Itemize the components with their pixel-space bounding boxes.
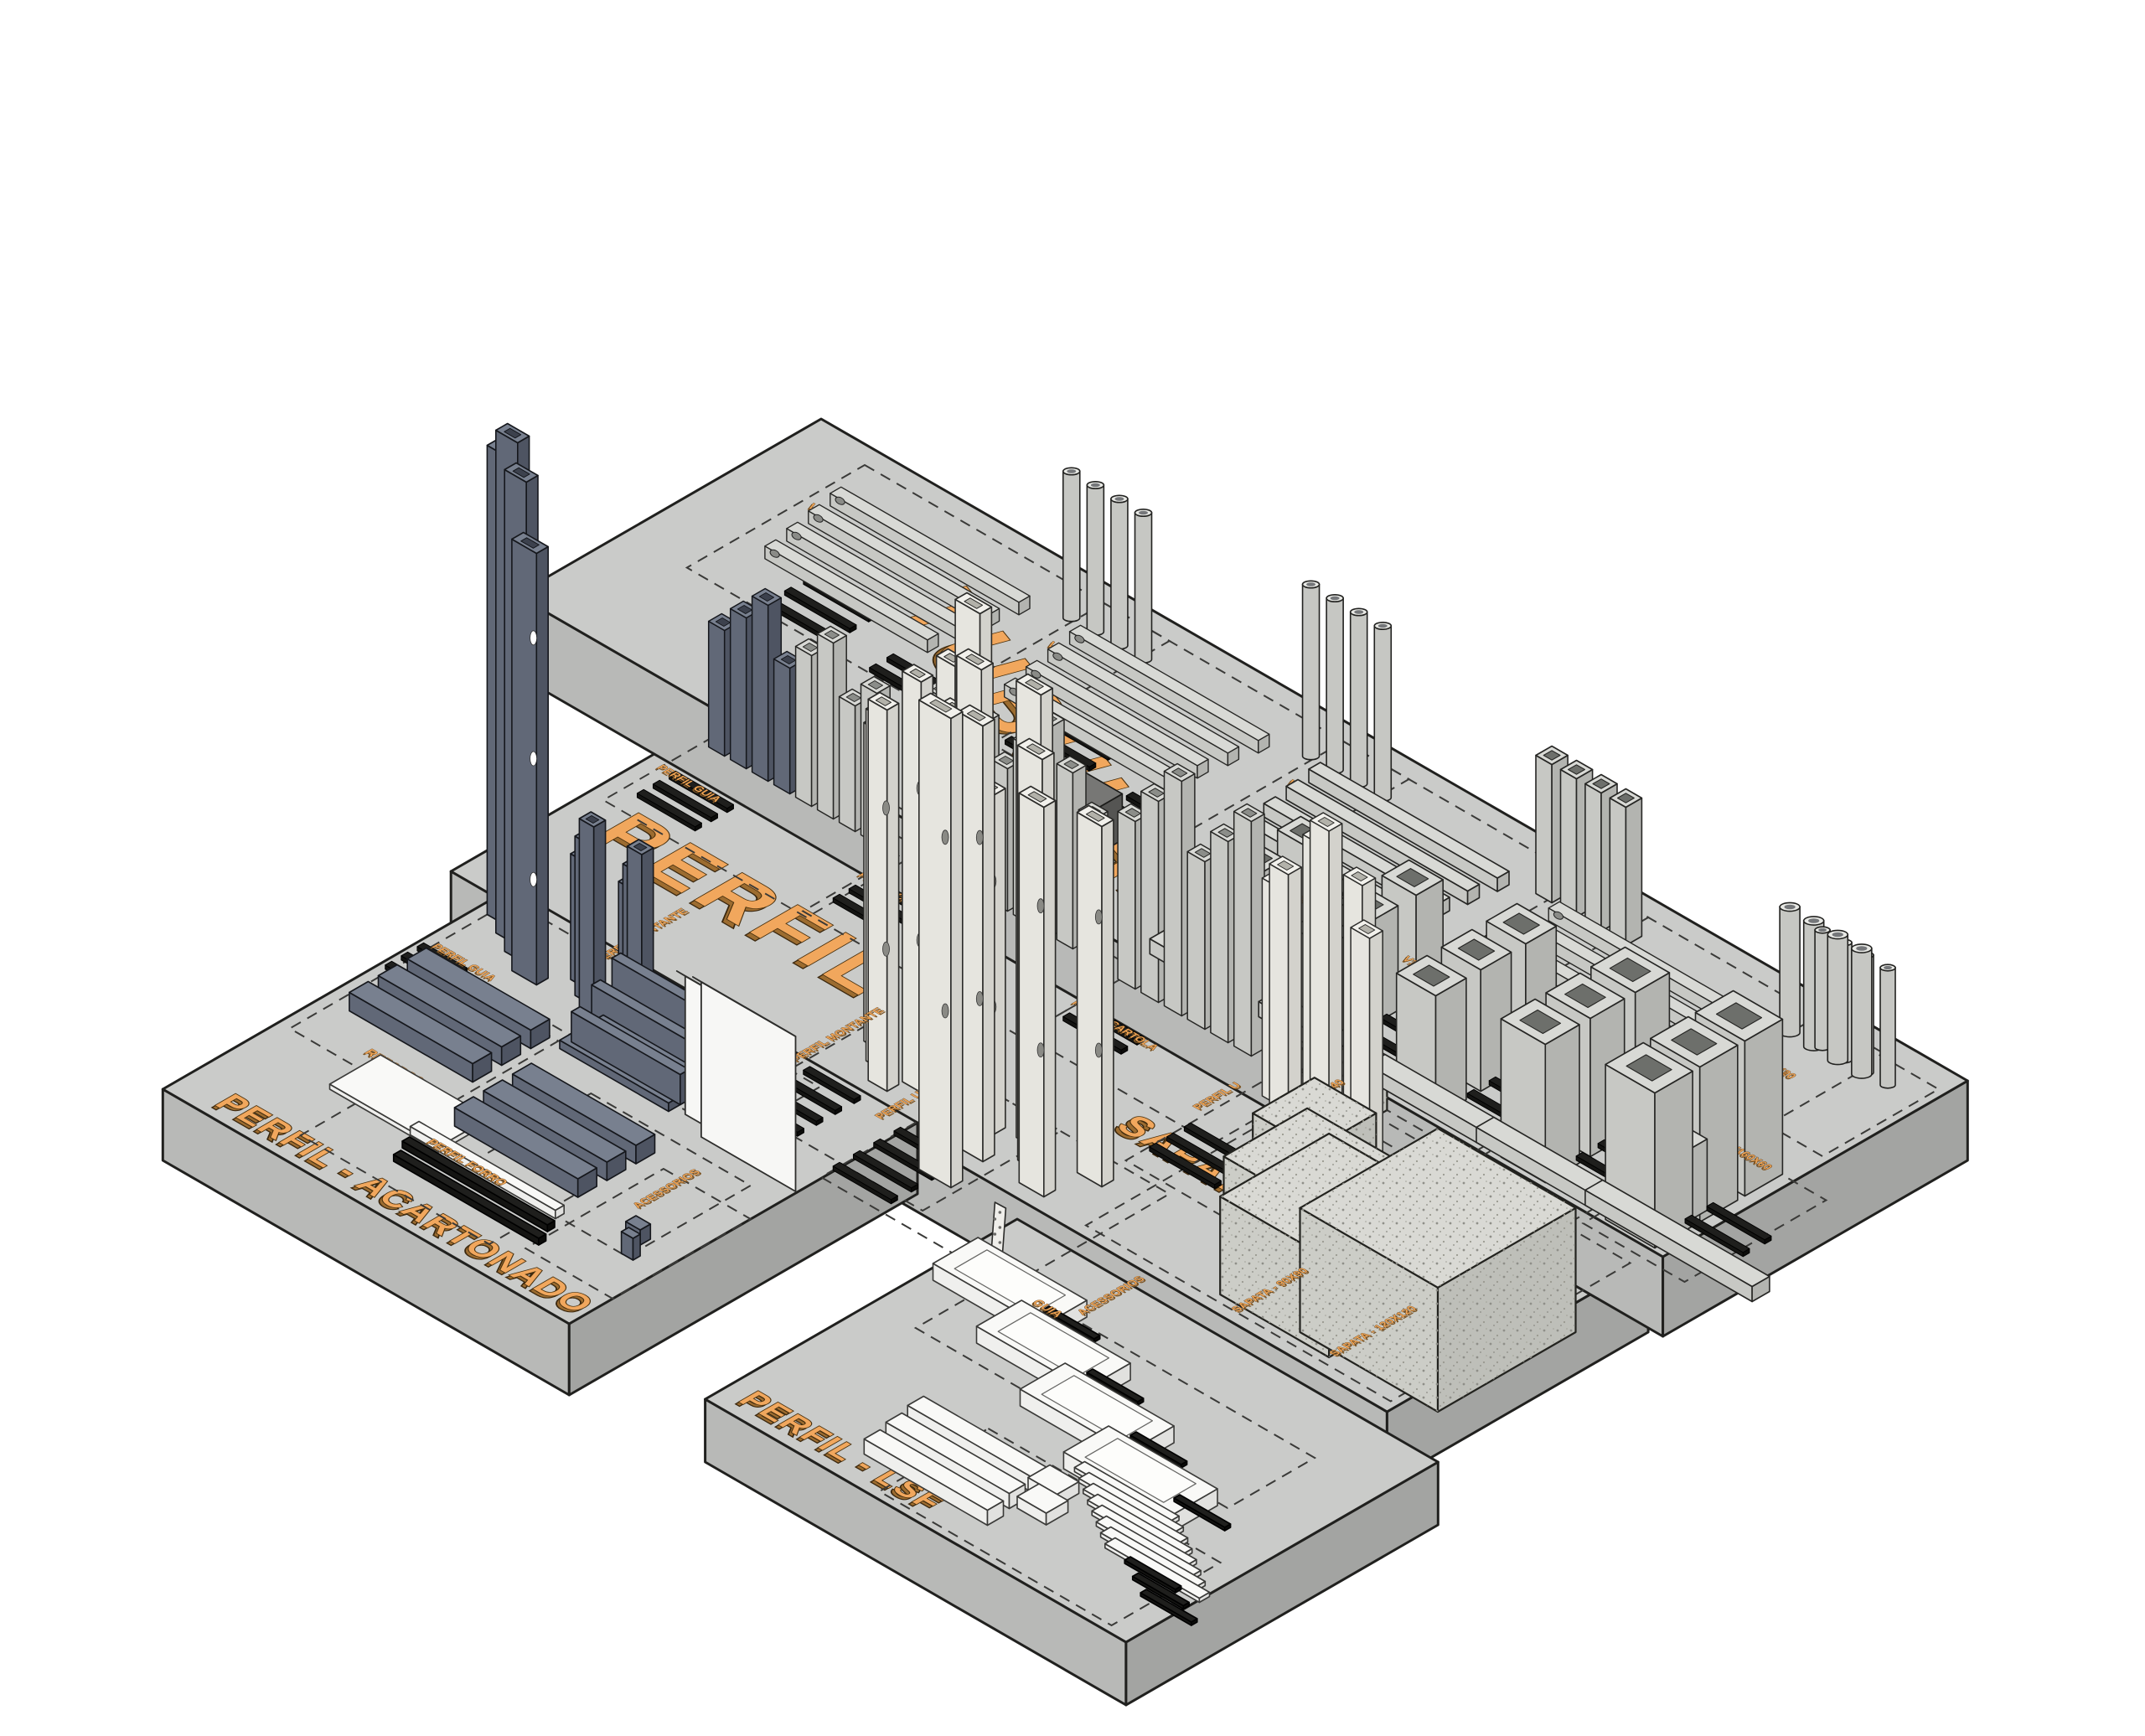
round-tube: [1852, 944, 1872, 1078]
diagram-canvas: PERFIL PERFIL TUBULAR TUBULAR SAPATA SAP…: [0, 0, 2145, 1736]
steel-stud: [959, 705, 995, 1162]
material-objects: V30X30V30X30V40X40V40X40PERFIL GUIAPERFI…: [290, 424, 1939, 1626]
steel-stud: [1019, 787, 1055, 1197]
round-tube: [1351, 608, 1367, 787]
round-tube: [1087, 482, 1104, 635]
round-tube: [1780, 902, 1800, 1036]
bracket: [622, 1227, 641, 1260]
round-tube: [1063, 468, 1080, 621]
steel-stud: [868, 693, 898, 1092]
square-tube: [1610, 789, 1641, 946]
drywall-stud: [512, 533, 548, 985]
round-tube: [1111, 495, 1128, 648]
round-tube: [1374, 623, 1391, 801]
round-tube: [1880, 964, 1895, 1088]
round-tube: [1303, 581, 1320, 759]
round-tube: [1135, 509, 1152, 663]
round-tube: [1827, 930, 1848, 1064]
steel-stud: [1078, 806, 1114, 1187]
wide-stud: [919, 694, 963, 1188]
round-tube: [1326, 595, 1343, 773]
isometric-materials-diagram: PERFIL PERFIL TUBULAR TUBULAR SAPATA SAP…: [0, 0, 2145, 1736]
c-channel: [1234, 804, 1264, 1057]
c-channel: [1269, 856, 1301, 1126]
